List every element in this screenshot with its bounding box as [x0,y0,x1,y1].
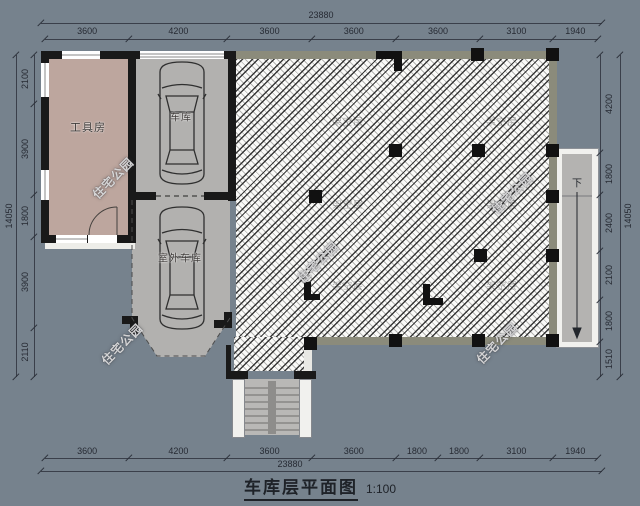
door-swing [89,207,117,235]
open-area-label: 架空层 [332,114,364,128]
drawing-scale: 1:100 [366,482,396,496]
outdoor-garage-label: 室外车库 [158,250,202,265]
drawing-title-block: 车库层平面图1:100 [0,473,640,501]
stair-top-walls [226,345,316,379]
tool-room-label: 工具房 [70,119,106,135]
open-area-label: 架空层 [332,197,364,211]
garage-walls [122,51,236,334]
down-arrow-icon [573,192,581,338]
drawing-title: 车库层平面图 [244,473,358,501]
garage-label: 车库 [170,109,192,124]
open-area-label: 架空层 [332,278,364,292]
stair-center-divider [268,381,276,434]
ramp-down-label: 下 [572,175,582,190]
open-area-label: 架空层 [486,278,518,292]
open-area-label: 架空层 [486,114,518,128]
tool-room-walls [41,51,136,243]
floor-plan-canvas: 工具房 车库 室外车库 架空层 架空层 架空层 架空层 架空层 架空层 下 住宅… [0,0,640,506]
dashed-boundaries [132,196,230,356]
car-icon [158,207,206,329]
